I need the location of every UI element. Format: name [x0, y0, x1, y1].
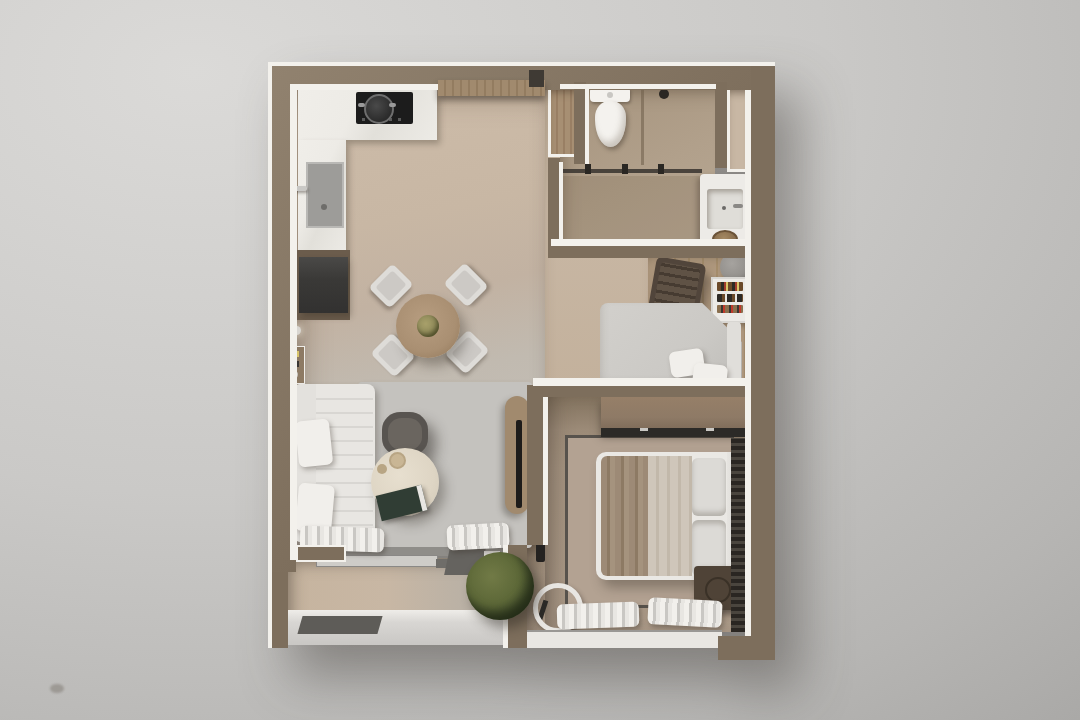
wall-stub-balcony	[296, 545, 346, 562]
living-curtain-right	[446, 522, 509, 550]
shower-head	[659, 89, 669, 99]
glass-fitting-2	[622, 164, 628, 174]
wardrobe-handle-2	[706, 428, 714, 431]
table-centerpiece-plant	[417, 315, 439, 337]
fridge-top	[299, 257, 348, 313]
wardrobe-sliding-track	[601, 428, 746, 437]
wall-bottom-right	[718, 636, 775, 660]
trim-top-kitchen	[296, 84, 438, 90]
bedroom-window	[527, 630, 722, 648]
cooking-pot	[364, 94, 394, 124]
wardrobe-handle-1	[640, 428, 648, 431]
wardrobe	[601, 397, 746, 431]
wall-bedroom-top	[533, 385, 751, 397]
floor-shower-zone	[560, 176, 700, 245]
balcony-step-dark	[297, 616, 382, 634]
bed-blanket-draped	[601, 456, 648, 576]
pot-handle-right	[389, 103, 396, 107]
wall-balcony-left	[272, 572, 288, 648]
glass-fitting-3	[658, 164, 664, 174]
console-tv	[516, 420, 522, 508]
nightstand-knob	[705, 577, 731, 603]
balcony-plant	[466, 552, 534, 620]
wall-right	[751, 66, 775, 660]
basin-faucet	[733, 204, 743, 208]
coffee-cup-1	[389, 452, 406, 469]
trim-bathroom-bottom	[551, 239, 751, 246]
glass-fitting-1	[585, 164, 591, 174]
bed-pillow-upper	[692, 458, 726, 516]
bath-zone-divider	[641, 87, 644, 165]
book-row-1	[717, 282, 743, 291]
coffee-cup-2	[377, 464, 387, 474]
trim-bath-left-up	[585, 86, 589, 164]
pot-handle-left	[358, 103, 365, 107]
armchair-seat	[388, 418, 422, 450]
floor-plan-model	[0, 0, 1080, 720]
wall-bathroom-bottom	[548, 245, 751, 258]
trim-bath-left-low	[559, 162, 563, 245]
trim-right-inner	[745, 90, 751, 636]
trim-bedroom-top	[533, 378, 746, 386]
trim-bedroom-left	[543, 397, 548, 545]
book-row-3	[717, 305, 743, 313]
sink-drain	[321, 204, 327, 210]
bedroom-curtain-right	[647, 597, 722, 628]
bed-blanket-light	[648, 456, 692, 576]
shower-glass-partition	[562, 169, 702, 173]
trim-left-inner	[290, 84, 297, 560]
sofa-pillow-1	[295, 418, 334, 467]
wall-shower-niche	[715, 82, 727, 168]
basin-drain	[722, 206, 726, 210]
flush-button	[607, 92, 613, 98]
render-backdrop	[0, 0, 1080, 720]
trim-outer-top	[268, 62, 775, 66]
book-row-2	[717, 294, 743, 302]
bedroom-curtain-left	[557, 602, 640, 630]
entry-door-leaf	[529, 70, 544, 87]
watermark-dot	[50, 684, 64, 693]
trim-outer-left	[268, 64, 272, 648]
trim-bath-top	[560, 84, 716, 89]
kitchen-sink	[306, 162, 344, 228]
